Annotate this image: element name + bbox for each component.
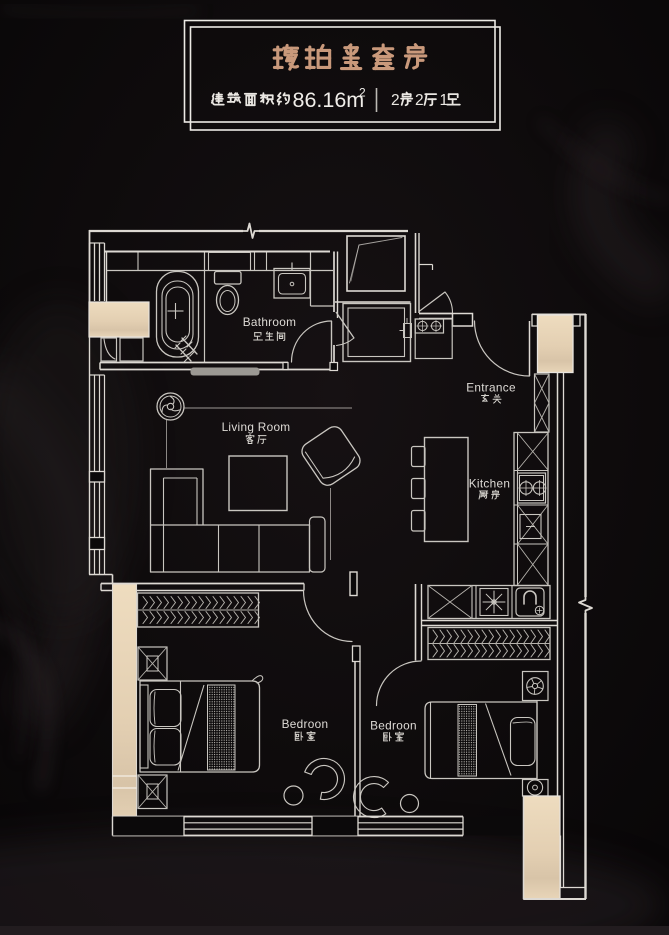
svg-text:86.16m: 86.16m	[293, 88, 365, 112]
svg-text:2: 2	[415, 92, 424, 109]
svg-text:Living Room: Living Room	[222, 420, 291, 434]
svg-text:Entrance: Entrance	[466, 381, 516, 395]
svg-text:Bedroon: Bedroon	[370, 719, 417, 733]
svg-text:Kitchen: Kitchen	[469, 477, 510, 491]
svg-text:Bedroon: Bedroon	[282, 717, 329, 731]
svg-text:2: 2	[391, 92, 400, 109]
svg-text:1: 1	[440, 92, 449, 109]
svg-text:2: 2	[359, 86, 366, 100]
svg-text:Bathroom: Bathroom	[243, 315, 297, 329]
